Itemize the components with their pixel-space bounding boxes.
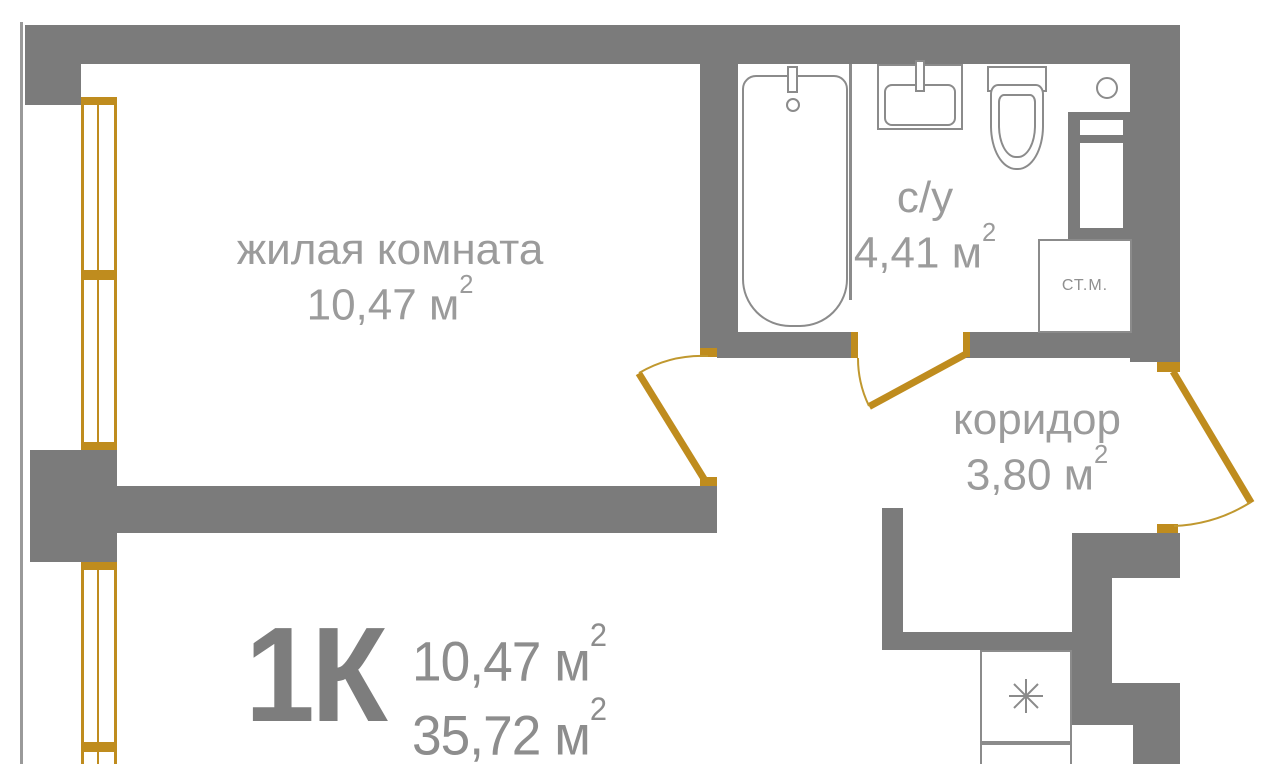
bathroom-area: 4,41 м2: [820, 221, 1030, 277]
corridor-area: 3,80 м2: [922, 443, 1152, 499]
bathroom-door-arc: [858, 358, 869, 406]
floor-plan: жилая комната 10,47 м2 с/у 4,41 м2 корид…: [0, 0, 1280, 764]
corridor-label: коридор 3,80 м2: [922, 396, 1152, 499]
apartment-total-area: 35,72 м2: [412, 693, 606, 764]
bathroom-label: с/у 4,41 м2: [820, 174, 1030, 277]
entry-door-arc: [1174, 502, 1251, 526]
fridge-snowflake-icon: [1009, 679, 1043, 713]
washing-machine-label: СТ.М.: [1038, 239, 1132, 333]
corridor-name: коридор: [922, 396, 1152, 443]
living-room-area: 10,47 м2: [165, 273, 615, 329]
apartment-areas: 10,47 м2 35,72 м2: [412, 619, 606, 764]
apartment-type-label: 1К: [245, 607, 384, 742]
bathroom-name: с/у: [820, 174, 1030, 221]
door-arcs-and-icons: [0, 0, 1280, 764]
living-room-label: жилая комната 10,47 м2: [165, 226, 615, 329]
apartment-living-area: 10,47 м2: [412, 619, 606, 693]
living-room-name: жилая комната: [165, 226, 615, 273]
living-room-door-arc: [639, 356, 708, 373]
